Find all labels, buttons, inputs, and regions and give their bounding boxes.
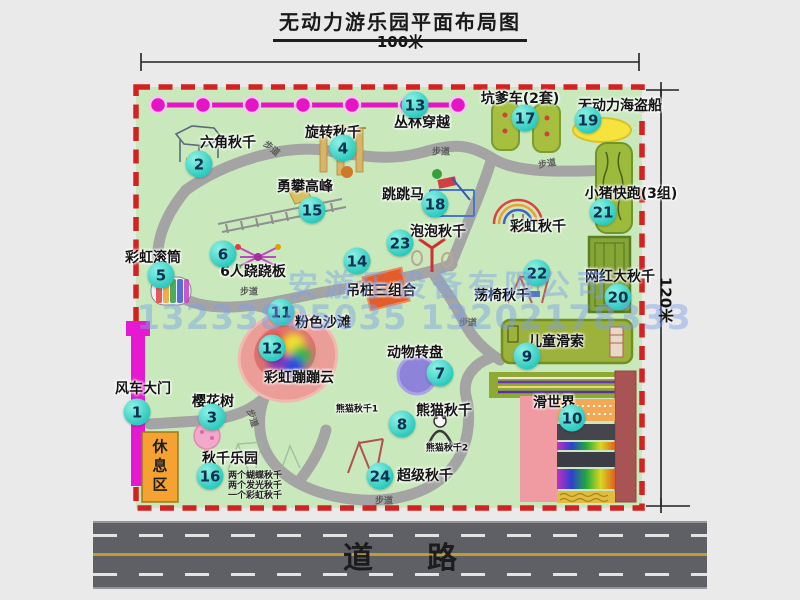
badge-rainbow-bounce-cloud: 12 <box>259 335 286 362</box>
badge-slide-world: 10 <box>559 405 586 432</box>
label-windmill-gate: 风车大门 <box>115 378 171 398</box>
trail-label-7: 步道 <box>375 494 393 507</box>
label-hexagon-swing: 六角秋千 <box>200 132 256 152</box>
swing-park-note-1: 两个蝴蝶秋千 <box>228 471 282 481</box>
label-hanging-post-combo: 吊桩三组合 <box>346 280 416 300</box>
trail-label-5: 步道 <box>459 316 477 329</box>
label-panda-swing-2: 熊猫秋千2 <box>426 441 468 454</box>
badge-pink-beach: 11 <box>268 299 295 326</box>
swing-park-note-3: 一个彩虹秋千 <box>228 491 282 501</box>
label-rainbow-swing: 彩虹秋千 <box>510 216 566 236</box>
road: 道路 <box>93 521 707 589</box>
badge-jungle-crossing: 13 <box>402 92 429 119</box>
label-bubble-swing: 泡泡秋千 <box>410 221 466 241</box>
road-label: 道路 <box>289 533 511 577</box>
badge-kids-zipline: 9 <box>514 343 541 370</box>
badge-cherry-tree: 3 <box>199 404 226 431</box>
page-title: 无动力游乐园平面布局图 <box>273 6 527 42</box>
badge-windmill-gate: 1 <box>124 399 151 426</box>
badge-swing-chair: 22 <box>524 260 551 287</box>
badge-hanging-post-combo: 14 <box>344 248 371 275</box>
rest-area-label: 休息区 <box>150 439 171 496</box>
badge-swing-park: 16 <box>197 463 224 490</box>
badge-pit-car: 17 <box>512 105 539 132</box>
label-jumping-horse: 跳跳马 <box>382 184 424 204</box>
swing-park-note-2: 两个发光秋千 <box>228 481 282 491</box>
badge-animal-carousel: 7 <box>427 360 454 387</box>
label-climbing-peak: 勇攀高峰 <box>277 176 333 196</box>
dimension-height-label: 120米 <box>656 277 677 323</box>
swing-park-notes: 两个蝴蝶秋千 两个发光秋千 一个彩虹秋千 <box>228 471 282 501</box>
badge-jumping-horse: 18 <box>422 191 449 218</box>
badge-piggy-run: 21 <box>590 199 617 226</box>
label-panda-swing-1: 熊猫秋千1 <box>336 402 378 415</box>
badge-panda-swing: 8 <box>389 411 416 438</box>
badge-pirate-ship: 19 <box>575 107 602 134</box>
badge-climbing-peak: 15 <box>299 197 326 224</box>
park-layout-screenshot: 无动力游乐园平面布局图 <box>0 0 800 600</box>
label-rainbow-bounce-cloud: 彩虹蹦蹦云 <box>264 367 334 387</box>
badge-rotating-swing: 4 <box>330 135 357 162</box>
badge-seesaw: 6 <box>210 241 237 268</box>
badge-big-web-swing: 20 <box>605 284 632 311</box>
park-map-graphic <box>0 0 800 600</box>
label-panda-swing: 熊猫秋千 <box>416 400 472 420</box>
label-animal-carousel: 动物转盘 <box>387 342 443 362</box>
trail-label-4: 步道 <box>240 285 258 298</box>
label-swing-chair: 荡椅秋千 <box>474 285 530 305</box>
badge-hexagon-swing: 2 <box>186 151 213 178</box>
badge-bubble-swing: 23 <box>387 230 414 257</box>
badge-rainbow-roller: 5 <box>148 262 175 289</box>
label-pink-beach: 粉色沙滩 <box>295 312 351 332</box>
badge-super-swing: 24 <box>367 463 394 490</box>
label-super-swing: 超级秋千 <box>397 465 453 485</box>
trail-label-2: 步道 <box>432 145 450 158</box>
